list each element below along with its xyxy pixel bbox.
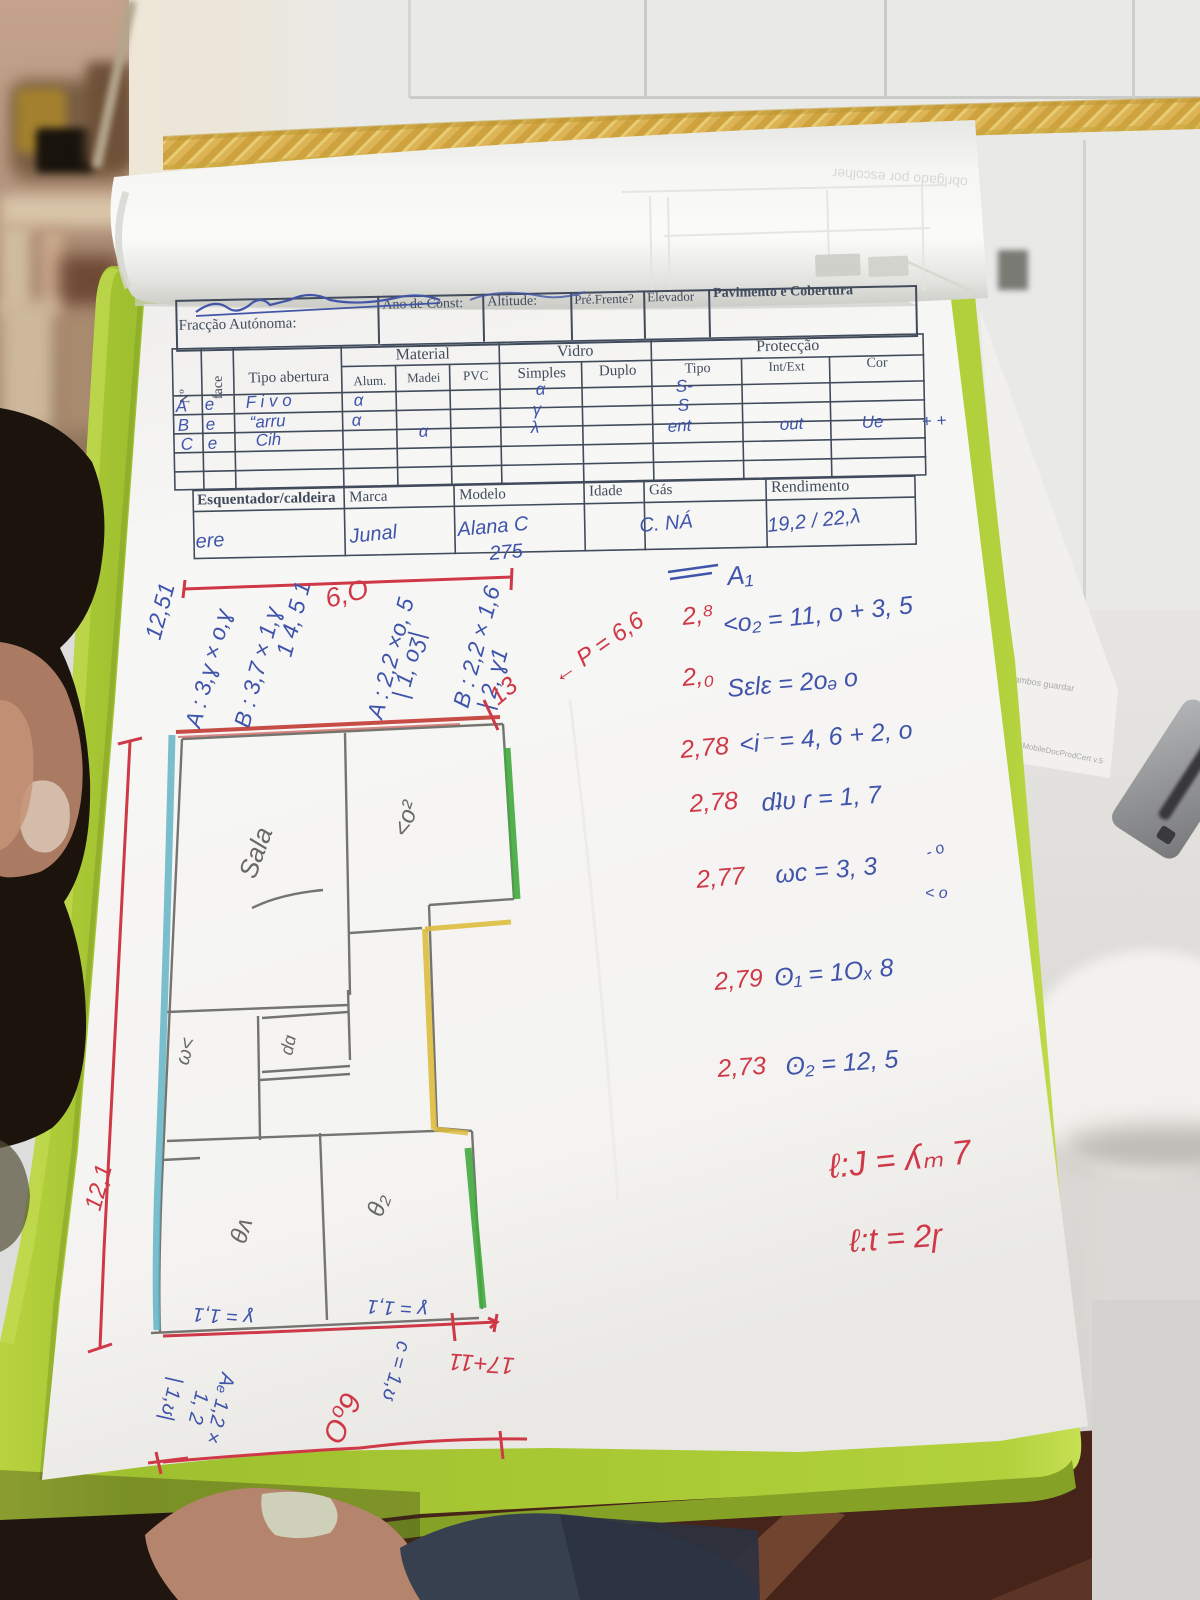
svg-text:ℓ:J = ʎₘ 7: ℓ:J = ʎₘ 7	[826, 1133, 974, 1186]
svg-text:out: out	[779, 414, 805, 434]
svg-text:Sεlε = 2oₔ o: Sεlε = 2oₔ o	[726, 664, 859, 703]
svg-text:2,77: 2,77	[694, 862, 747, 894]
svg-text:+ +: + +	[921, 411, 947, 431]
svg-text:A: A	[174, 396, 187, 416]
svg-text:S-: S-	[675, 376, 693, 396]
svg-text:S: S	[677, 395, 690, 415]
svg-text:θʌ: θʌ	[225, 1215, 258, 1247]
svg-text:Alana C: Alana C	[456, 513, 530, 541]
svg-text:c = 1,ʊ: c = 1,ʊ	[377, 1339, 414, 1404]
svg-text:2,₀: 2,₀	[680, 661, 715, 692]
svg-text:ωc = 3, 3: ωc = 3, 3	[774, 852, 878, 889]
svg-text:F i v o: F i v o	[245, 391, 292, 412]
svg-text:12,1: 12,1	[80, 1161, 118, 1213]
svg-text:← P = 6,6: ← P = 6,6	[546, 606, 649, 690]
svg-text:e: e	[204, 395, 214, 414]
svg-text:dɑ: dɑ	[276, 1033, 300, 1057]
svg-text:α: α	[418, 421, 430, 441]
svg-text:γ: γ	[532, 399, 543, 418]
svg-text:‌Cih: ‌Cih	[255, 430, 281, 450]
svg-text:˂i⁻ = 4, 6 + 2, o: ˂i⁻ = 4, 6 + 2, o	[738, 716, 914, 759]
svg-text:˂o²: ˂o²	[388, 797, 425, 840]
svg-text:˂ o: ˂ o	[925, 885, 948, 902]
svg-text:- o: - o	[924, 839, 947, 861]
svg-text:Junal: Junal	[347, 521, 398, 548]
svg-text:“arru: “arru	[249, 411, 286, 432]
svg-text:ℓ:t = 2ɼ: ℓ:t = 2ɼ	[847, 1216, 945, 1259]
svg-text:| 1,ʊ|: | 1,ʊ|	[155, 1375, 186, 1423]
svg-text:2,73: 2,73	[715, 1052, 767, 1083]
svg-text:ω˂: ω˂	[172, 1035, 200, 1067]
svg-text:e: e	[205, 415, 215, 434]
svg-text:6,O: 6,O	[322, 574, 372, 614]
svg-text:C: C	[180, 434, 194, 454]
svg-text:Sala: Sala	[232, 823, 278, 882]
svg-text:A : 3,ɣ × o,ɣ: A : 3,ɣ × o,ɣ	[179, 605, 236, 732]
svg-text:ɣ = 1,1: ɣ = 1,1	[366, 1295, 428, 1321]
svg-text:ent: ent	[667, 416, 693, 436]
svg-text:ʘ₁ = 1Oₓ 8: ʘ₁ = 1Oₓ 8	[773, 954, 895, 992]
svg-text:19,2 / 22,λ: 19,2 / 22,λ	[766, 505, 861, 537]
svg-text:2,78: 2,78	[678, 732, 730, 764]
svg-text:2,⁸: 2,⁸	[680, 600, 715, 631]
svg-text:˂o₂ = 11, o + 3, 5: ˂o₂ = 11, o + 3, 5	[722, 591, 914, 639]
svg-text:α: α	[351, 410, 363, 430]
svg-text:17+11: 17+11	[448, 1347, 515, 1379]
svg-text:ere: ere	[195, 529, 225, 553]
svg-text:ʘ₂ = 12, 5: ʘ₂ = 12, 5	[784, 1045, 899, 1081]
svg-text:C. NÁ: C. NÁ	[638, 509, 693, 537]
svg-text:α: α	[353, 390, 365, 410]
svg-text:ɣ = 1,1: ɣ = 1,1	[192, 1303, 254, 1329]
svg-text:2,79: 2,79	[712, 964, 764, 996]
svg-text:A₁: A₁	[724, 559, 754, 591]
svg-text:B : 3,7 × 1,ɣ: B : 3,7 × 1,ɣ	[229, 603, 286, 730]
svg-text:2,78: 2,78	[687, 787, 739, 818]
svg-text:275: 275	[488, 540, 525, 565]
svg-text:Ue: Ue	[861, 412, 884, 432]
svg-text:α: α	[535, 379, 547, 399]
svg-text:B: B	[177, 415, 189, 435]
svg-text:6ₒO: 6ₒO	[316, 1387, 368, 1448]
svg-text:12,51: 12,51	[140, 580, 180, 642]
svg-text:λ: λ	[529, 418, 539, 437]
svg-text:dʇʋ ɾ = 1, 7: dʇʋ ɾ = 1, 7	[760, 781, 883, 817]
svg-text:e: e	[207, 434, 217, 453]
svg-text:θ₂: θ₂	[362, 1190, 395, 1219]
